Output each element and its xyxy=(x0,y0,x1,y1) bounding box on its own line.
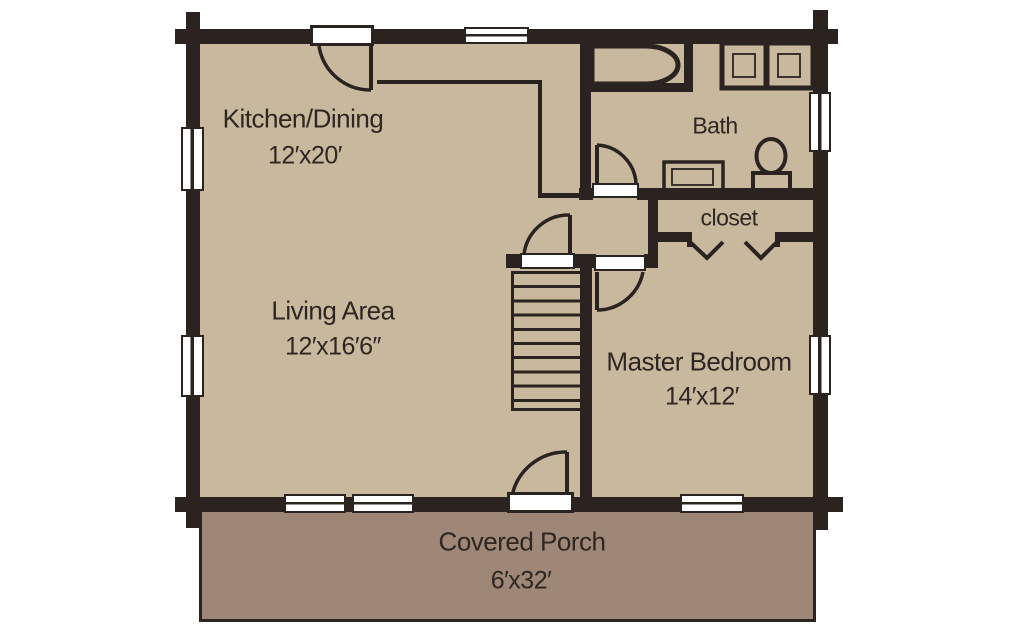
master-door-arc xyxy=(597,272,643,310)
room-label-closet: closet xyxy=(700,205,757,232)
wall-left xyxy=(186,12,200,528)
cabinet xyxy=(767,43,813,88)
floor-plan-canvas: Kitchen/Dining 12′x20′ Living Area 12′x1… xyxy=(0,0,1024,640)
porch-door-arc xyxy=(512,452,567,496)
bath-door-arc xyxy=(597,145,636,183)
room-label-kitchen: Kitchen/Dining xyxy=(223,104,384,135)
stair-door-opening xyxy=(520,253,575,269)
room-dims-living: 12′x16′6″ xyxy=(285,333,381,362)
bifold-door xyxy=(745,242,777,258)
room-label-porch: Covered Porch xyxy=(439,527,606,558)
window-kitchen-left xyxy=(181,127,204,191)
room-label-bath: Bath xyxy=(692,113,737,140)
window-master-right xyxy=(809,335,831,395)
window-living-bottom-2 xyxy=(352,494,414,513)
stair-door-arc xyxy=(524,215,570,254)
room-dims-kitchen: 12′x20′ xyxy=(268,142,342,171)
wall-kitchen-bath-divider xyxy=(580,43,591,193)
wall-living-master-divider xyxy=(580,254,592,498)
room-label-master: Master Bedroom xyxy=(606,347,791,378)
wall-closet-jamb-right xyxy=(775,232,780,247)
room-dims-porch: 6′x32′ xyxy=(491,567,552,596)
window-bath-right xyxy=(809,92,831,152)
window-living-bottom-1 xyxy=(284,494,346,513)
window-kitchen-top xyxy=(464,27,529,44)
window-master-bottom xyxy=(680,494,744,513)
porch-door-opening xyxy=(507,492,574,513)
room-dims-master: 14′x12′ xyxy=(665,383,739,412)
wall-tub-alcove-right xyxy=(684,43,693,88)
bifold-door xyxy=(690,242,723,258)
bath-door-opening xyxy=(592,183,639,198)
wall-right xyxy=(813,10,828,530)
wall-tub-alcove-bottom xyxy=(588,83,693,92)
room-label-living: Living Area xyxy=(271,296,394,327)
entry-door-opening xyxy=(310,25,374,46)
bathtub xyxy=(592,46,678,84)
wall-closet-jamb-left xyxy=(687,232,692,247)
master-door-opening xyxy=(594,255,646,271)
wall-bath-bottom xyxy=(637,188,817,200)
entry-door-arc xyxy=(319,46,371,90)
toilet-bowl xyxy=(757,139,786,173)
wall-bath-door-jamb xyxy=(579,188,593,200)
wall-hall-right-stub xyxy=(644,254,658,268)
window-living-left xyxy=(181,335,204,397)
cabinet xyxy=(722,43,766,88)
wall-closet-bottom-right xyxy=(775,232,817,242)
